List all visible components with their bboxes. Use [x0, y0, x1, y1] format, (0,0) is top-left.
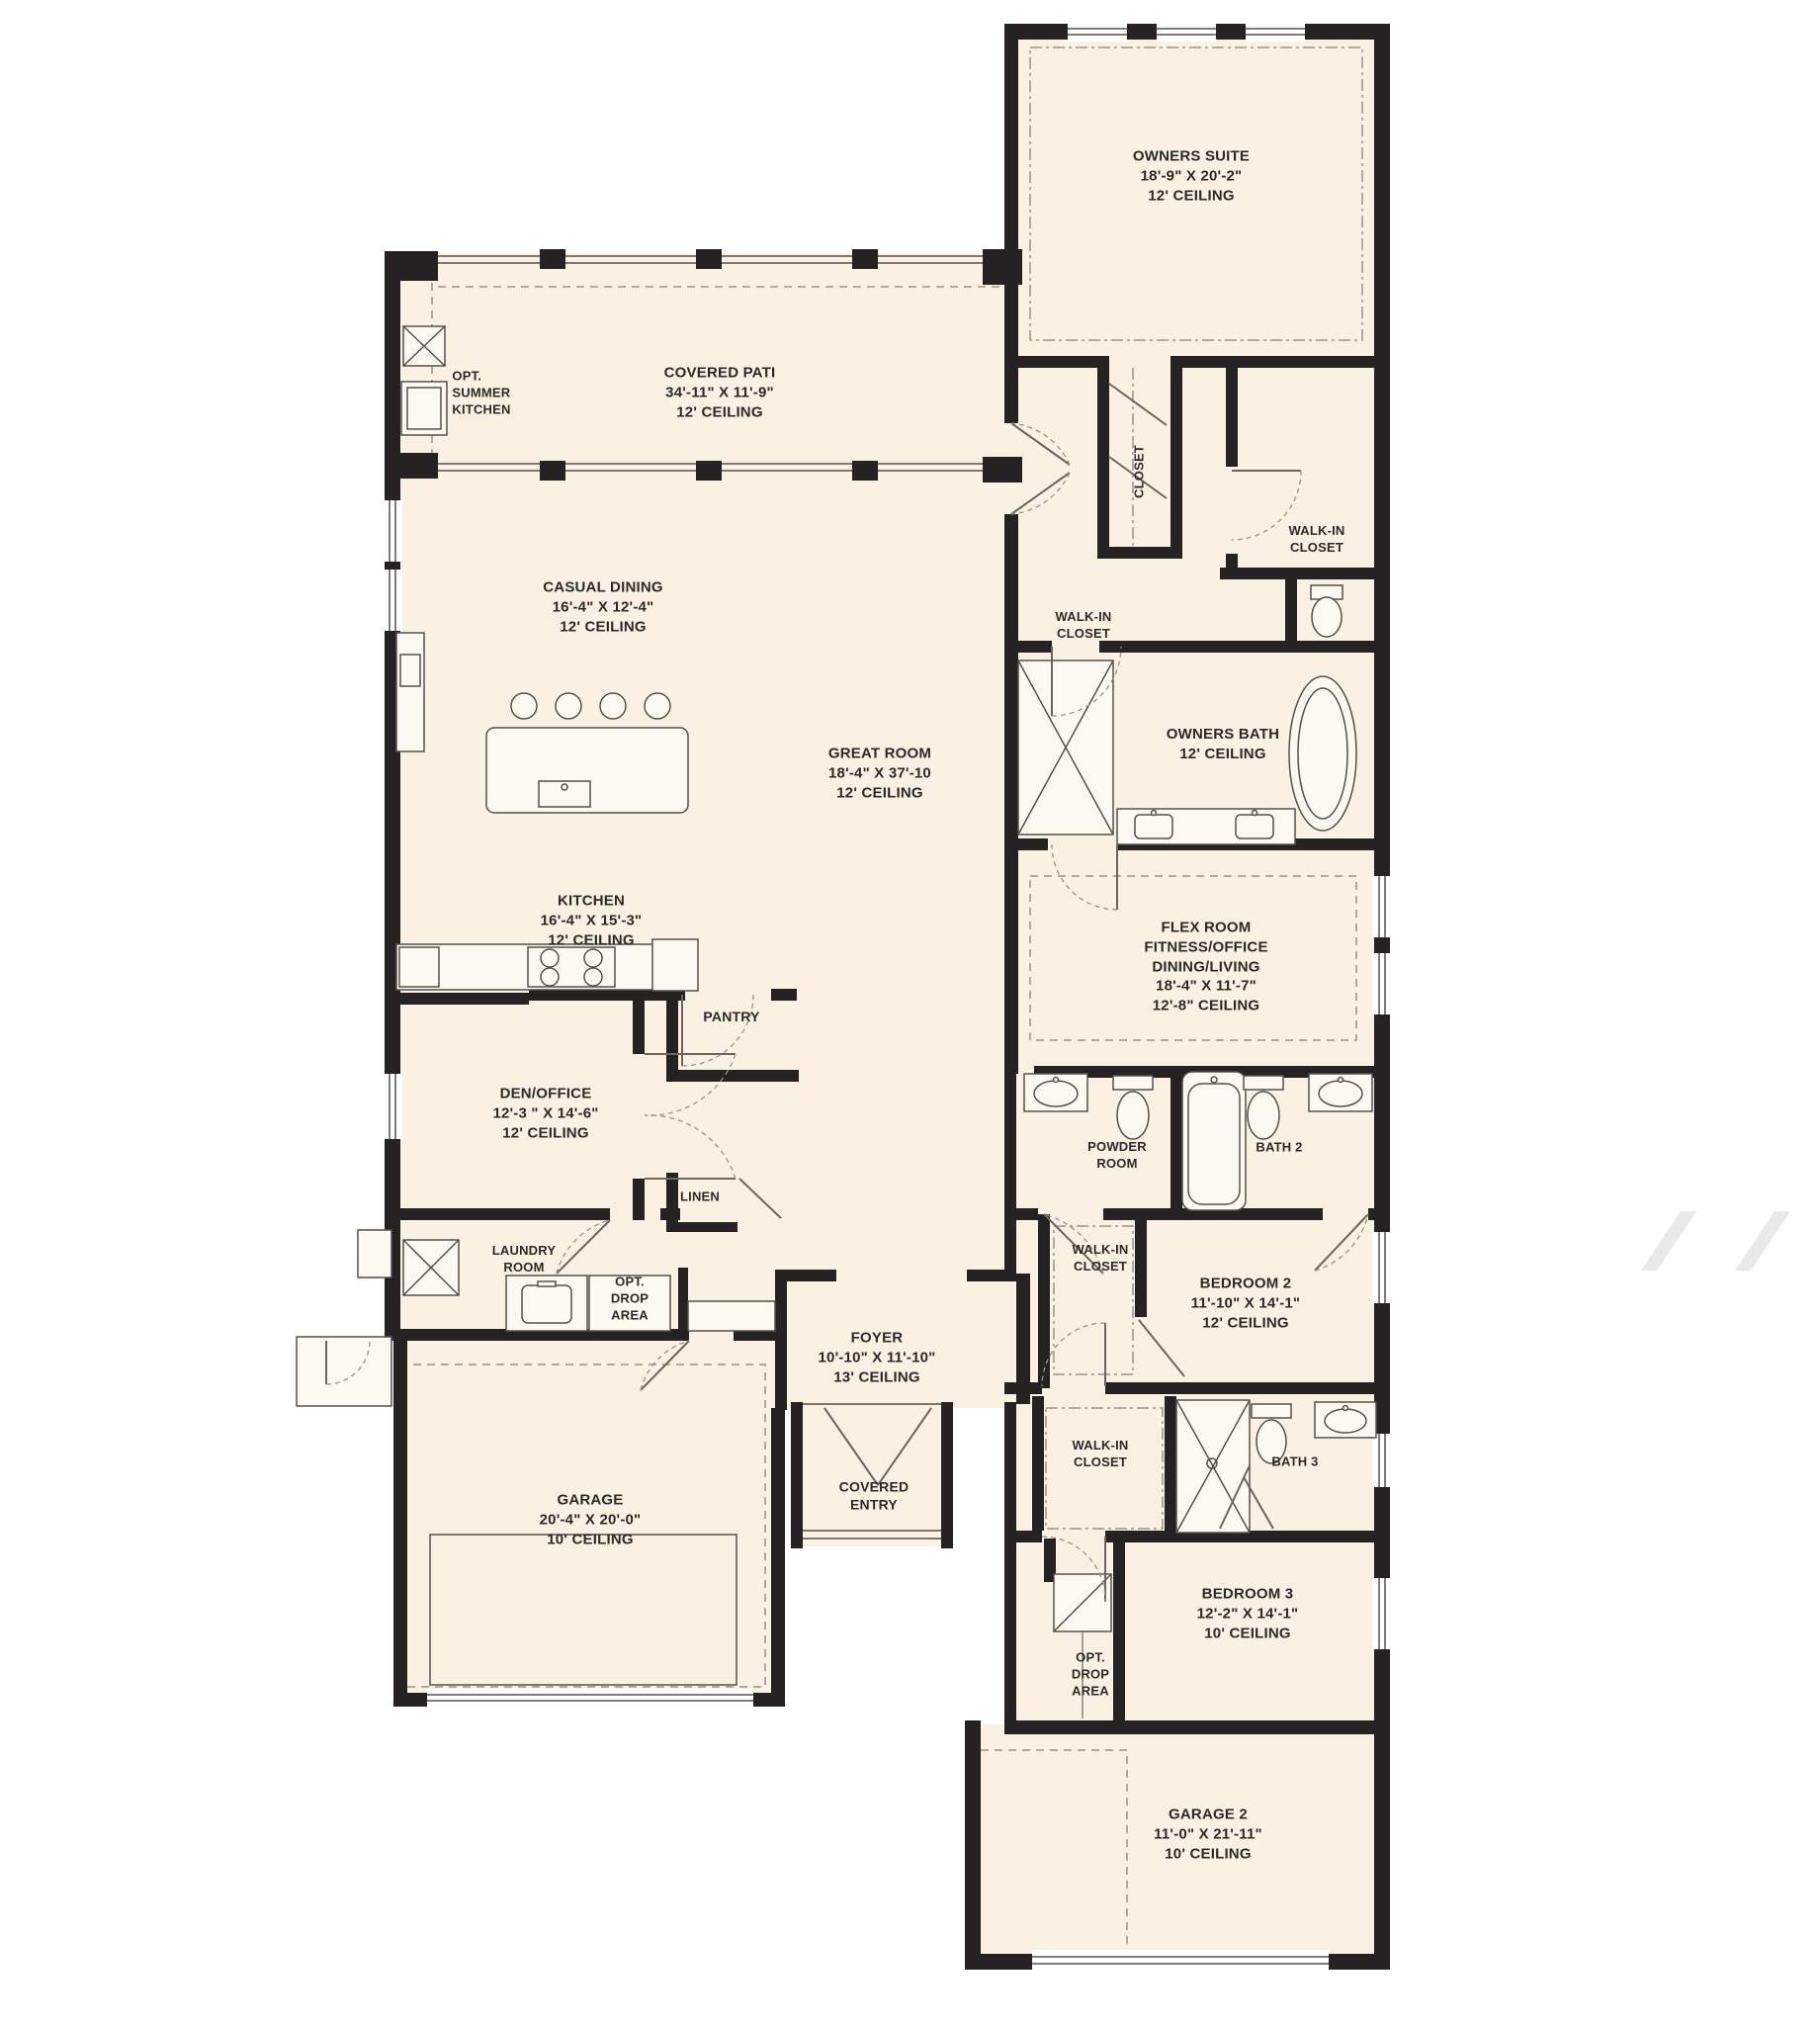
label-line: 12'-3 " X 14'-6" — [492, 1103, 598, 1123]
laundry-sink-icon — [358, 1230, 459, 1295]
bath3-shower-icon — [1176, 1400, 1250, 1533]
room-label-casual-dining: CASUAL DINING16'-4" X 12'-4"12' CEILING — [543, 577, 663, 636]
label-line: ENTRY — [839, 1496, 910, 1514]
room-label-walk-in-closet-bedroom-3: WALK-INCLOSET — [1073, 1437, 1129, 1470]
room-label-kitchen: KITCHEN16'-4" X 15'-3"12' CEILING — [541, 891, 643, 949]
label-line: 12' CEILING — [664, 402, 776, 422]
bath3-sink-icon — [1315, 1402, 1376, 1438]
label-line: 12' CEILING — [1167, 745, 1279, 764]
label-line: CLOSET — [1073, 1453, 1129, 1470]
owners-double-vanity-icon — [1117, 809, 1295, 844]
label-line: SUMMER — [452, 384, 510, 400]
room-label-flex-room: FLEX ROOMFITNESS/OFFICEDINING/LIVING18'-… — [1144, 919, 1267, 1016]
label-line: OWNERS BATH — [1167, 725, 1279, 745]
kitchen-sink-icon — [399, 947, 439, 987]
label-line: POWDER — [1087, 1138, 1147, 1155]
label-line: 16'-4" X 15'-3" — [541, 911, 643, 930]
label-line: 10' CEILING — [1197, 1624, 1299, 1643]
refrigerator-icon — [652, 939, 698, 991]
room-label-bedroom-2: BEDROOM 211'-10" X 14'-1"12' CEILING — [1191, 1274, 1300, 1332]
room-label-garage-2: GARAGE 211'-0" X 21'-11"10' CEILING — [1154, 1805, 1262, 1863]
label-line: 18'-9" X 20'-2" — [1133, 166, 1250, 186]
label-line: BATH 3 — [1271, 1453, 1318, 1469]
label-line: CLOSET — [1073, 1258, 1129, 1275]
label-line: GARAGE — [540, 1490, 642, 1510]
label-line: FITNESS/OFFICE — [1144, 937, 1267, 957]
porch-stoop — [297, 1337, 391, 1406]
room-label-bedroom-3: BEDROOM 312'-2" X 14'-1"10' CEILING — [1197, 1584, 1299, 1642]
room-label-den-office: DEN/OFFICE12'-3 " X 14'-6"12' CEILING — [492, 1084, 598, 1142]
label-line: 34'-11" X 11'-9" — [664, 383, 776, 402]
room-label-bath-2: BATH 2 — [1256, 1138, 1302, 1155]
label-line: 10' CEILING — [1154, 1844, 1262, 1864]
label-line: AREA — [1072, 1683, 1109, 1700]
label-line: WALK-IN — [1073, 1241, 1129, 1258]
bath2-sink-icon — [1309, 1074, 1372, 1111]
owners-shower-icon — [1018, 660, 1113, 835]
label-line: LINEN — [680, 1188, 720, 1204]
label-line: 12' CEILING — [543, 617, 663, 637]
label-line: KITCHEN — [452, 401, 510, 418]
bath2-tub-icon — [1182, 1072, 1246, 1210]
room-label-foyer: FOYER10'-10" X 11'-10"13' CEILING — [819, 1328, 936, 1386]
washer-icon — [506, 1276, 587, 1331]
label-line: BEDROOM 2 — [1191, 1274, 1300, 1293]
label-line: PANTRY — [703, 1008, 759, 1025]
floor-plan-drawing — [0, 0, 1820, 2025]
label-line: OPT. — [452, 367, 510, 384]
room-label-owners-bath: OWNERS BATH12' CEILING — [1167, 725, 1279, 764]
label-line: 12' CEILING — [541, 930, 643, 950]
label-line: 18'-4" X 37'-10 — [828, 763, 931, 783]
soaking-tub-icon — [1289, 676, 1356, 831]
label-line: GREAT ROOM — [828, 744, 931, 763]
label-line: WALK-IN — [1289, 522, 1345, 539]
label-line: 16'-4" X 12'-4" — [543, 597, 663, 617]
room-label-covered-patio: COVERED PATI34'-11" X 11'-9"12' CEILING — [664, 363, 776, 421]
label-line: OPT. — [611, 1273, 649, 1289]
summer-kitchen-sink-icon — [403, 326, 445, 366]
label-line: AREA — [611, 1307, 649, 1324]
label-line: 10' CEILING — [540, 1530, 642, 1549]
buffet-counter-icon — [396, 633, 424, 751]
label-line: 11'-10" X 14'-1" — [1191, 1293, 1300, 1313]
label-line: DINING/LIVING — [1144, 957, 1267, 977]
label-line: WALK-IN — [1073, 1437, 1129, 1453]
room-label-opt-summer-kitchen: OPT.SUMMERKITCHEN — [452, 367, 510, 417]
room-label-closet: CLOSET — [1130, 445, 1147, 498]
room-label-great-room: GREAT ROOM18'-4" X 37'-1012' CEILING — [828, 744, 931, 802]
label-line: DROP — [611, 1289, 649, 1306]
label-line: OPT. — [1072, 1648, 1109, 1665]
label-line: BEDROOM 3 — [1197, 1584, 1299, 1604]
label-line: BATH 2 — [1256, 1138, 1302, 1155]
drop-zone-bench-icon — [688, 1301, 775, 1331]
room-label-owners-suite: OWNERS SUITE18'-9" X 20'-2"12' CEILING — [1133, 146, 1250, 205]
label-line: OWNERS SUITE — [1133, 146, 1250, 166]
room-label-walk-in-closet-owners-1: WALK-INCLOSET — [1289, 522, 1345, 556]
label-line: 12' CEILING — [1191, 1313, 1300, 1333]
room-label-garage: GARAGE20'-4" X 20'-0"10' CEILING — [540, 1490, 642, 1548]
label-line: CLOSET — [1056, 625, 1112, 642]
label-line: KITCHEN — [541, 891, 643, 911]
label-line: ROOM — [1087, 1155, 1147, 1172]
label-line: CLOSET — [1130, 445, 1147, 498]
room-label-opt-drop-area-2: OPT.DROPAREA — [1072, 1648, 1109, 1699]
label-line: 12' CEILING — [1133, 186, 1250, 206]
label-line: 20'-4" X 20'-0" — [540, 1510, 642, 1530]
label-line: DEN/OFFICE — [492, 1084, 598, 1103]
watermark — [1641, 1211, 1790, 1271]
label-line: FOYER — [819, 1328, 936, 1348]
room-label-pantry: PANTRY — [703, 1008, 759, 1025]
label-line: COVERED PATI — [664, 363, 776, 383]
powder-sink-icon — [1024, 1074, 1087, 1111]
label-line: DROP — [1072, 1665, 1109, 1682]
room-label-bath-3: BATH 3 — [1271, 1453, 1318, 1469]
label-line: 18'-4" X 11'-7" — [1144, 977, 1267, 997]
owners-toilet-icon — [1311, 585, 1343, 637]
label-line: 10'-10" X 11'-10" — [819, 1348, 936, 1367]
room-label-linen: LINEN — [680, 1188, 720, 1204]
room-label-laundry-room: LAUNDRYROOM — [492, 1242, 556, 1276]
room-label-powder-room: POWDERROOM — [1087, 1138, 1147, 1172]
room-label-covered-entry: COVEREDENTRY — [839, 1478, 910, 1515]
floor-plan: OWNERS SUITE18'-9" X 20'-2"12' CEILING O… — [0, 0, 1820, 2025]
label-line: FLEX ROOM — [1144, 919, 1267, 938]
label-line: 12' CEILING — [492, 1123, 598, 1143]
label-line: GARAGE 2 — [1154, 1805, 1262, 1824]
label-line: 11'-0" X 21'-11" — [1154, 1824, 1262, 1844]
label-line: CLOSET — [1289, 539, 1345, 556]
label-line: ROOM — [492, 1259, 556, 1276]
label-line: 12'-8" CEILING — [1144, 997, 1267, 1016]
label-line: WALK-IN — [1056, 608, 1112, 625]
room-label-opt-drop-area-1: OPT.DROPAREA — [611, 1273, 649, 1323]
summer-kitchen-grill-icon — [401, 382, 447, 435]
label-line: 12' CEILING — [828, 783, 931, 803]
room-label-walk-in-closet-bedroom-2: WALK-INCLOSET — [1073, 1241, 1129, 1275]
label-line: COVERED — [839, 1478, 910, 1496]
label-line: 12'-2" X 14'-1" — [1197, 1604, 1299, 1624]
label-line: LAUNDRY — [492, 1242, 556, 1259]
label-line: 13' CEILING — [819, 1367, 936, 1387]
room-label-walk-in-closet-owners-2: WALK-INCLOSET — [1056, 608, 1112, 642]
label-line: CASUAL DINING — [543, 577, 663, 597]
